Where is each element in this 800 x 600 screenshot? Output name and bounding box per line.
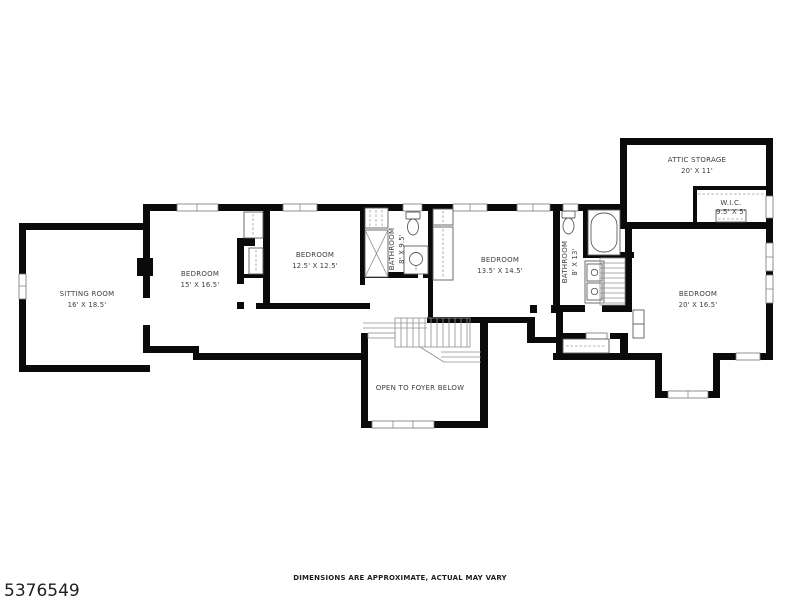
window [403, 204, 422, 211]
svg-text:W.I.C.: W.I.C. [720, 199, 741, 207]
window [766, 275, 773, 303]
svg-text:ATTIC STORAGE: ATTIC STORAGE [668, 156, 726, 164]
window [283, 204, 317, 211]
svg-text:9.5' X 5': 9.5' X 5' [716, 208, 746, 216]
shower [365, 230, 388, 277]
room-label-bathroom-2: BATHROOM 8' X 13' [561, 241, 579, 284]
svg-text:13.5' X 14.5': 13.5' X 14.5' [477, 267, 523, 275]
svg-text:BATHROOM: BATHROOM [561, 241, 569, 284]
bathtub [588, 210, 620, 255]
svg-text:BEDROOM: BEDROOM [481, 256, 519, 264]
footer: 5376549 DIMENSIONS ARE APPROXIMATE, ACTU… [4, 574, 508, 600]
window [453, 204, 487, 211]
window [668, 391, 708, 398]
room-label-wic: W.I.C. 9.5' X 5' [716, 199, 746, 216]
window [736, 353, 760, 360]
linen-closet [365, 208, 388, 228]
svg-text:SITTING ROOM: SITTING ROOM [60, 290, 115, 298]
mls-number: 5376549 [4, 581, 80, 600]
window [766, 196, 773, 218]
svg-text:BEDROOM: BEDROOM [181, 270, 219, 278]
staircase-foyer [363, 318, 481, 362]
cabinet [633, 310, 644, 338]
toilet [406, 212, 420, 235]
double-vanity [585, 261, 604, 303]
hall-closet [563, 339, 609, 353]
svg-text:20' X 11': 20' X 11' [681, 167, 713, 175]
svg-text:12.5' X 12.5': 12.5' X 12.5' [292, 262, 338, 270]
window [372, 421, 434, 428]
svg-text:OPEN TO FOYER BELOW: OPEN TO FOYER BELOW [376, 384, 465, 392]
toilet [562, 211, 575, 234]
svg-text:16' X 18.5': 16' X 18.5' [68, 301, 107, 309]
floor-plan-drawing: SITTING ROOM 16' X 18.5' BEDROOM 15' X 1… [0, 0, 800, 600]
window [517, 204, 550, 211]
svg-text:BEDROOM: BEDROOM [296, 251, 334, 259]
window [766, 243, 773, 271]
stair-railing [368, 333, 395, 338]
closet [433, 209, 453, 280]
svg-text:8' X 13': 8' X 13' [571, 248, 579, 275]
svg-text:20' X 16.5': 20' X 16.5' [679, 301, 718, 309]
floor-plan-page: SITTING ROOM 16' X 18.5' BEDROOM 15' X 1… [0, 0, 800, 600]
room-label-sitting-room: SITTING ROOM 16' X 18.5' [60, 290, 115, 309]
room-label-bedroom-2: BEDROOM 12.5' X 12.5' [292, 251, 338, 270]
room-label-bathroom-1: BATHROOM 8' X 9.5' [388, 228, 406, 271]
room-label-bedroom-1: BEDROOM 15' X 16.5' [181, 270, 220, 289]
svg-text:BATHROOM: BATHROOM [388, 228, 396, 271]
disclaimer-text: DIMENSIONS ARE APPROXIMATE, ACTUAL MAY V… [293, 574, 507, 582]
room-label-foyer: OPEN TO FOYER BELOW [376, 384, 465, 392]
svg-text:BEDROOM: BEDROOM [679, 290, 717, 298]
window [19, 274, 26, 299]
room-label-bedroom-3: BEDROOM 13.5' X 14.5' [477, 256, 523, 275]
window [177, 204, 218, 211]
sink-vanity [404, 246, 428, 274]
room-label-bedroom-4: BEDROOM 20' X 16.5' [679, 290, 718, 309]
window [563, 204, 578, 211]
svg-text:8' X 9.5': 8' X 9.5' [398, 234, 406, 264]
room-label-attic-storage: ATTIC STORAGE 20' X 11' [668, 156, 726, 175]
window [586, 333, 607, 339]
svg-text:15' X 16.5': 15' X 16.5' [181, 281, 220, 289]
